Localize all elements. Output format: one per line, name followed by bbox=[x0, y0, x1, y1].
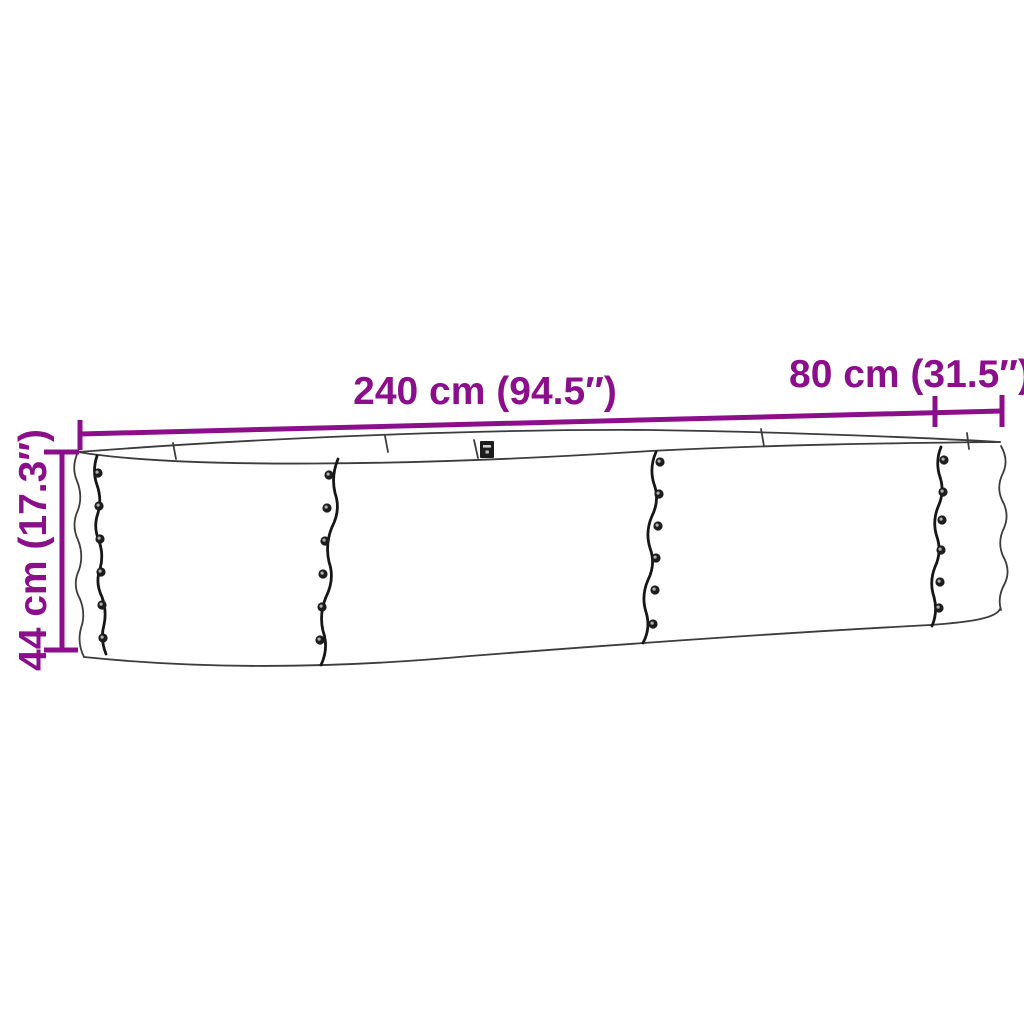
height-dimension-label: 44 cm (17.3″) bbox=[12, 429, 55, 671]
rivet bbox=[322, 503, 331, 512]
raised-bed-drawing bbox=[74, 429, 1007, 666]
rivet bbox=[93, 468, 102, 477]
rim-seam-tick bbox=[967, 433, 969, 449]
corrugated-left-edge bbox=[74, 452, 84, 657]
rivet bbox=[937, 515, 946, 524]
rivet bbox=[94, 501, 103, 510]
rivet bbox=[655, 457, 664, 466]
panel-seam-right bbox=[932, 447, 942, 626]
panel-seam-mid-right bbox=[643, 452, 657, 643]
corrugated-right-edge bbox=[999, 446, 1007, 610]
rivet bbox=[654, 489, 663, 498]
product-dimension-diagram: 240 cm (94.5″) 80 cm (31.5″) 44 cm (17.3… bbox=[0, 0, 1024, 1024]
panel-seam-left bbox=[95, 456, 107, 654]
rivet bbox=[936, 545, 945, 554]
rivet bbox=[650, 585, 659, 594]
rivet bbox=[939, 455, 948, 464]
width-dimension-label: 80 cm (31.5″) bbox=[789, 353, 1024, 396]
rivet bbox=[97, 600, 106, 609]
rivet bbox=[651, 553, 660, 562]
rim-seam-tick bbox=[385, 436, 388, 452]
rivet bbox=[653, 521, 662, 530]
height-dimension: 44 cm (17.3″) bbox=[12, 429, 79, 671]
clip-seam-tick bbox=[474, 440, 478, 458]
rivet bbox=[934, 603, 943, 612]
rivet bbox=[320, 536, 329, 545]
rivet bbox=[96, 567, 105, 576]
rivet bbox=[318, 569, 327, 578]
rivet bbox=[317, 602, 326, 611]
bottom-edge-line bbox=[84, 609, 1000, 666]
rivet-column-mid-left bbox=[315, 470, 333, 644]
rivet bbox=[935, 577, 944, 586]
rivet bbox=[315, 635, 324, 644]
rivet bbox=[324, 470, 333, 479]
rivet bbox=[648, 619, 657, 628]
rim-front-edge-line bbox=[78, 442, 1000, 464]
rivet bbox=[95, 534, 104, 543]
length-dimension-label: 240 cm (94.5″) bbox=[353, 370, 617, 413]
clip-slot bbox=[483, 445, 491, 448]
clip-body bbox=[480, 441, 494, 458]
diagram-canvas: 240 cm (94.5″) 80 cm (31.5″) 44 cm (17.3… bbox=[0, 0, 1024, 1024]
rivet-column-mid-right bbox=[648, 457, 664, 628]
rivet bbox=[938, 487, 947, 496]
panel-seam-mid-left bbox=[321, 459, 338, 665]
clip-dot bbox=[486, 451, 489, 454]
rim-back-edge-line bbox=[78, 430, 1000, 452]
center-clip bbox=[474, 440, 494, 458]
rivet bbox=[98, 633, 107, 642]
